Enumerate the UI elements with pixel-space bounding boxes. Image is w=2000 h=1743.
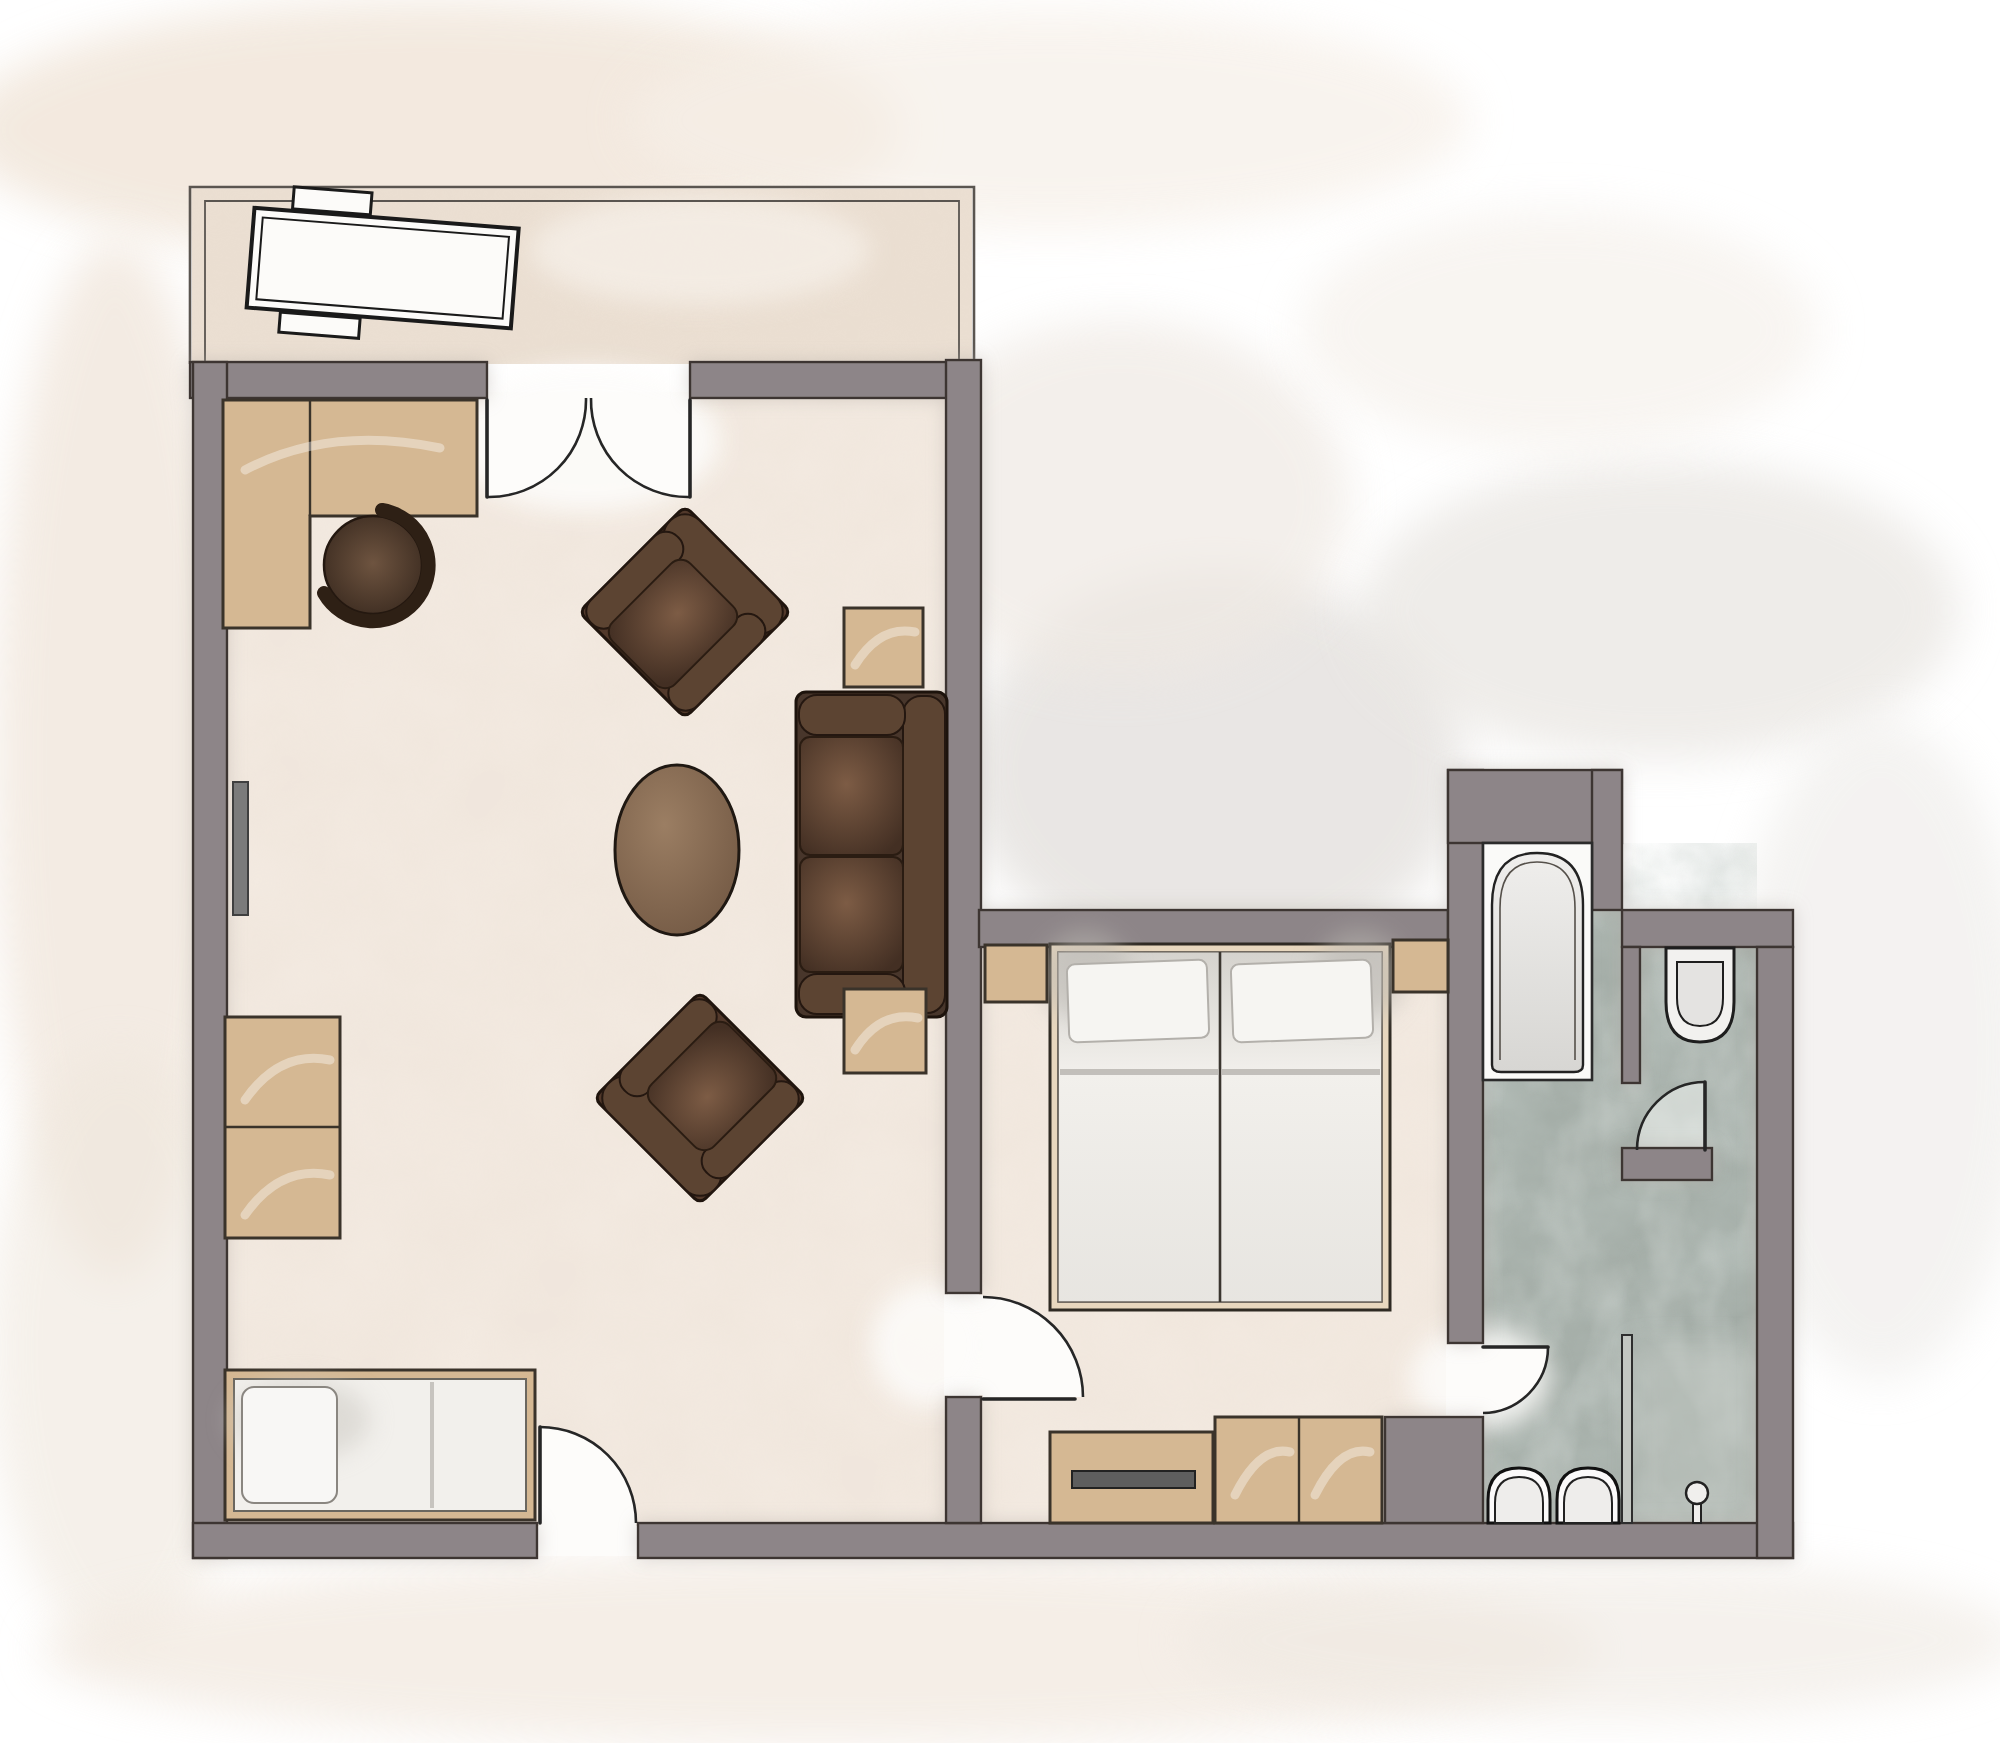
wall-wc-north	[1622, 910, 1793, 947]
bed-pillow-left	[1067, 960, 1210, 1043]
sun-lounger-frame	[247, 208, 519, 328]
wall-divider-lower	[946, 1397, 981, 1523]
glass-partition	[1622, 1335, 1632, 1523]
tv-sideboard	[1050, 1432, 1213, 1523]
double-bed	[1040, 930, 1405, 1310]
wall-north-left	[190, 362, 487, 398]
sofa-backrest	[903, 696, 945, 1013]
floor-plan-page	[0, 0, 2000, 1743]
bed-pillow-right	[1231, 960, 1374, 1043]
washbasin-left	[1488, 1468, 1550, 1523]
room-balcony	[190, 184, 974, 364]
nightstand-right	[1393, 940, 1448, 992]
sofa	[796, 692, 947, 1017]
bathtub-basin	[1492, 853, 1583, 1072]
wall-bathtub-stub	[1592, 770, 1622, 910]
daybed-pillow	[242, 1387, 337, 1503]
wardrobe	[1215, 1417, 1382, 1523]
sofa-cushion-2	[800, 857, 903, 972]
wall-south-right	[638, 1523, 1793, 1558]
room-bedroom	[985, 930, 1448, 1523]
wall-divider-upper	[946, 360, 981, 1293]
toilet-bowl	[1677, 962, 1723, 1026]
oval-coffee-table	[615, 765, 739, 935]
lounger-foot-stool	[279, 312, 360, 338]
radiator	[233, 782, 248, 915]
wall-bathroom-west	[1448, 770, 1483, 1343]
wall-east	[1757, 947, 1793, 1558]
tv	[1072, 1471, 1195, 1488]
bathtub	[1483, 843, 1592, 1080]
toilet	[1666, 948, 1734, 1042]
sofa-armrest-top	[799, 695, 905, 735]
utility-block	[1385, 1417, 1483, 1523]
daybed	[225, 1370, 535, 1520]
nightstand-left	[985, 945, 1047, 1002]
washbasin-right	[1557, 1468, 1619, 1523]
wall-wc-partition	[1622, 947, 1640, 1083]
sofa-cushion-1	[800, 737, 903, 855]
wall-south-left	[193, 1523, 537, 1558]
wall-wc-stub	[1622, 1148, 1712, 1180]
side-table-upper	[844, 608, 923, 687]
wall-north-right	[690, 362, 978, 398]
floor-plan-drawing	[0, 0, 2000, 1743]
side-table-lower	[844, 989, 926, 1073]
